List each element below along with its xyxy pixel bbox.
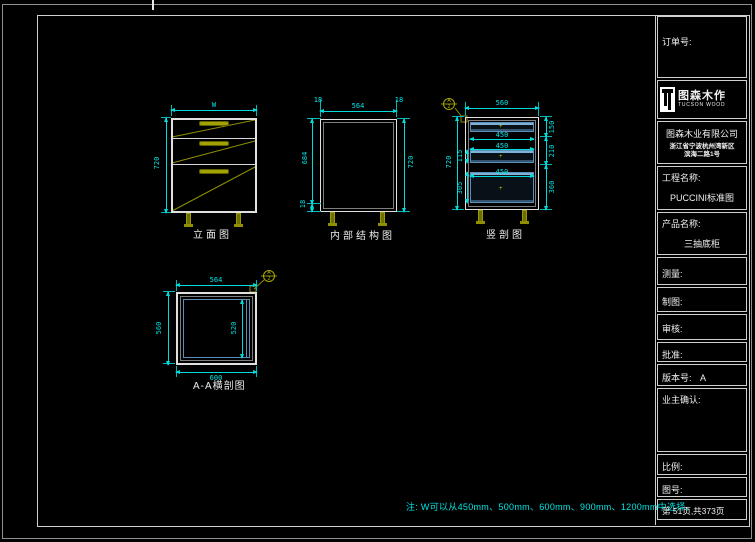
drawing-no-row: 图号:: [657, 477, 747, 497]
brand-logo-row: 图森木作 TUCSON WOOD: [657, 80, 747, 119]
project-label: 工程名称:: [662, 171, 742, 184]
dimension-line: [546, 117, 547, 137]
dim-label: 18: [299, 189, 307, 219]
dimension-line: [166, 118, 167, 213]
dim-label: 560: [155, 313, 163, 343]
dimension-line: [465, 108, 539, 109]
company-row: 图森木业有限公司 浙江省宁波杭州湾新区 滨海二路1号: [657, 121, 747, 164]
company-name: 图森木业有限公司: [662, 127, 742, 140]
approve-label: 批准:: [662, 350, 683, 360]
elevation-title: 立面图: [193, 226, 232, 241]
dim-label: 18: [310, 96, 326, 104]
approve-row: 批准:: [657, 342, 747, 362]
dim-label: 450: [487, 168, 517, 176]
dim-label: W: [199, 101, 229, 109]
brand-name-cn: 图森木作: [678, 90, 726, 102]
version-label: 版本号:: [662, 373, 692, 383]
internal-title: 内部结构图: [330, 227, 395, 242]
dim-label: 564: [201, 276, 231, 284]
company-address-line1: 浙江省宁波杭州湾新区: [662, 143, 742, 151]
section-marker-number: 2: [443, 105, 455, 110]
page-info: 第 51页,共373页: [662, 506, 724, 516]
dim-label: 520: [230, 313, 238, 343]
dim-label: 720: [153, 148, 161, 178]
dim-label: 720: [445, 147, 453, 177]
version-value: A: [700, 373, 706, 383]
check-row: 审核:: [657, 314, 747, 340]
owner-confirm-label: 业主确认:: [662, 395, 701, 405]
dimension-line: [320, 111, 397, 112]
dimension-line: [171, 110, 257, 111]
dim-label: 115: [456, 141, 464, 171]
dimension-line: [168, 292, 169, 365]
dim-label: 720: [407, 147, 415, 177]
dim-label: 450: [487, 131, 517, 139]
measure-row: 测量:: [657, 257, 747, 285]
cabinet-leg-foot: [328, 223, 337, 226]
product-value: 三抽底柜: [662, 237, 742, 250]
drawer-handle: [199, 121, 229, 126]
dim-label: 564: [343, 102, 373, 110]
dimension-line: [546, 137, 547, 165]
dim-label: 18: [391, 96, 407, 104]
vsection-title: 竖剖图: [486, 226, 525, 241]
hardware-mark: +: [499, 154, 503, 160]
scale-label: 比例:: [662, 462, 683, 472]
section-marker-number: 2: [263, 277, 275, 282]
dim-label: 305: [456, 173, 464, 203]
draft-row: 制图:: [657, 287, 747, 312]
brand-text: 图森木作 TUCSON WOOD: [678, 90, 726, 109]
project-value: PUCCINI标准图: [662, 191, 742, 204]
scale-row: 比例:: [657, 454, 747, 475]
elevation-drawer-divider: [173, 164, 255, 165]
cabinet-leg-foot: [184, 224, 193, 227]
dimension-line: [176, 372, 257, 373]
drawing-no-label: 图号:: [662, 485, 683, 495]
measure-label: 测量:: [662, 269, 683, 279]
dim-label: 450: [487, 142, 517, 150]
brand-name-en: TUCSON WOOD: [678, 102, 726, 109]
hardware-mark: +: [499, 186, 503, 192]
hsection-drawer-line: [183, 299, 250, 358]
dimension-line: [404, 119, 405, 212]
sheet-note: 注: W可以从450mm、500mm、600mm、900mm、1200mm中选择…: [406, 500, 695, 513]
hardware-mark: +: [499, 124, 503, 130]
hsection-title: A-A横剖图: [193, 377, 246, 392]
cad-sheet: W 720 立面图 564 18 18 684 18 720 内部结构图 A 2…: [0, 0, 755, 542]
dim-label: 560: [487, 99, 517, 107]
dimension-line: [176, 285, 257, 286]
page-info-row: 第 51页,共373页: [657, 499, 747, 520]
dim-label: 684: [301, 143, 309, 173]
dimension-line: [546, 165, 547, 210]
dimension-line: [470, 176, 534, 177]
dimension-line: [467, 150, 468, 163]
cabinet-leg-foot: [476, 221, 485, 224]
cabinet-leg-foot: [378, 223, 387, 226]
dimension-line: [467, 172, 468, 203]
company-address-line2: 滨海二路1号: [662, 151, 742, 159]
tucson-logo-icon: [660, 87, 675, 112]
dimension-line: [470, 139, 534, 140]
dimension-line: [242, 300, 243, 358]
dimension-line: [312, 119, 313, 204]
drawer-handle: [199, 141, 229, 146]
dimension-line: [312, 204, 313, 212]
elevation-cabinet-outline: [171, 118, 257, 213]
dim-label: 360: [548, 172, 556, 202]
cad-linework-overlay: [0, 0, 755, 542]
order-number-label: 订单号:: [662, 37, 692, 47]
draft-label: 制图:: [662, 297, 683, 307]
cabinet-leg-foot: [234, 224, 243, 227]
cabinet-leg-foot: [520, 221, 529, 224]
hsection-drawer-side: [246, 300, 247, 357]
version-row: 版本号: A: [657, 364, 747, 386]
order-number-row: 订单号:: [657, 16, 747, 78]
product-label: 产品名称:: [662, 217, 742, 230]
title-block: 订单号: 图森木作 TUCSON WOOD 图森木业有限公司 浙江省宁波杭州湾新…: [656, 16, 748, 522]
elevation-drawer-divider: [173, 138, 255, 139]
dim-label: 210: [548, 136, 556, 166]
check-label: 审核:: [662, 324, 683, 334]
drawer-handle: [199, 169, 229, 174]
internal-panel-line: [323, 122, 394, 209]
product-row: 产品名称: 三抽底柜: [657, 212, 747, 255]
owner-confirm-row: 业主确认:: [657, 388, 747, 452]
project-row: 工程名称: PUCCINI标准图: [657, 166, 747, 210]
